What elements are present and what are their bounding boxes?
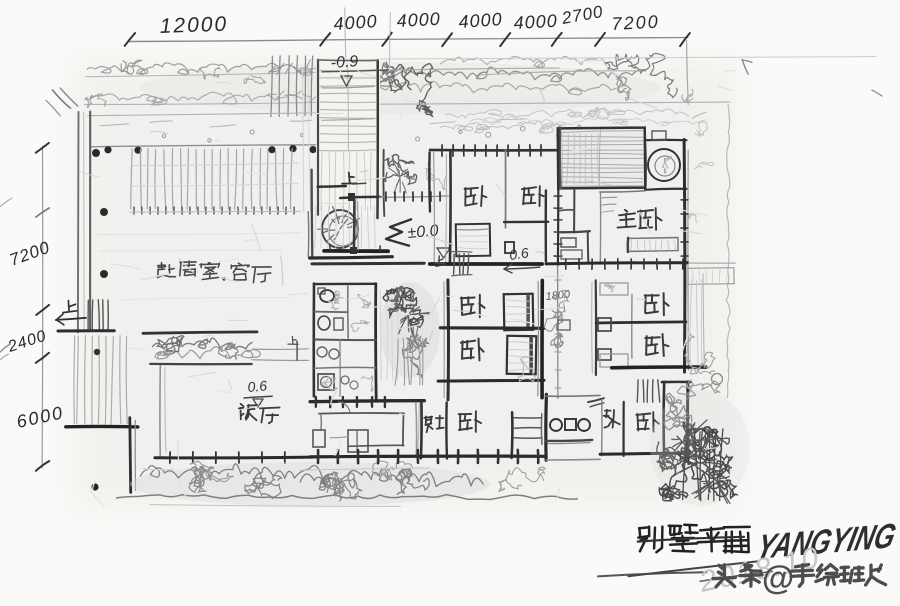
svg-text:12000: 12000: [159, 13, 228, 38]
svg-text:-0.9: -0.9: [330, 53, 359, 72]
svg-text:4000: 4000: [396, 9, 441, 31]
svg-text:4000: 4000: [513, 11, 558, 33]
svg-text:@: @: [762, 559, 794, 596]
svg-text:0.6: 0.6: [247, 377, 268, 395]
svg-text:0.6: 0.6: [508, 244, 530, 263]
svg-text:4000: 4000: [333, 11, 378, 34]
svg-text:7200: 7200: [611, 12, 660, 34]
svg-text:4000: 4000: [458, 9, 503, 32]
